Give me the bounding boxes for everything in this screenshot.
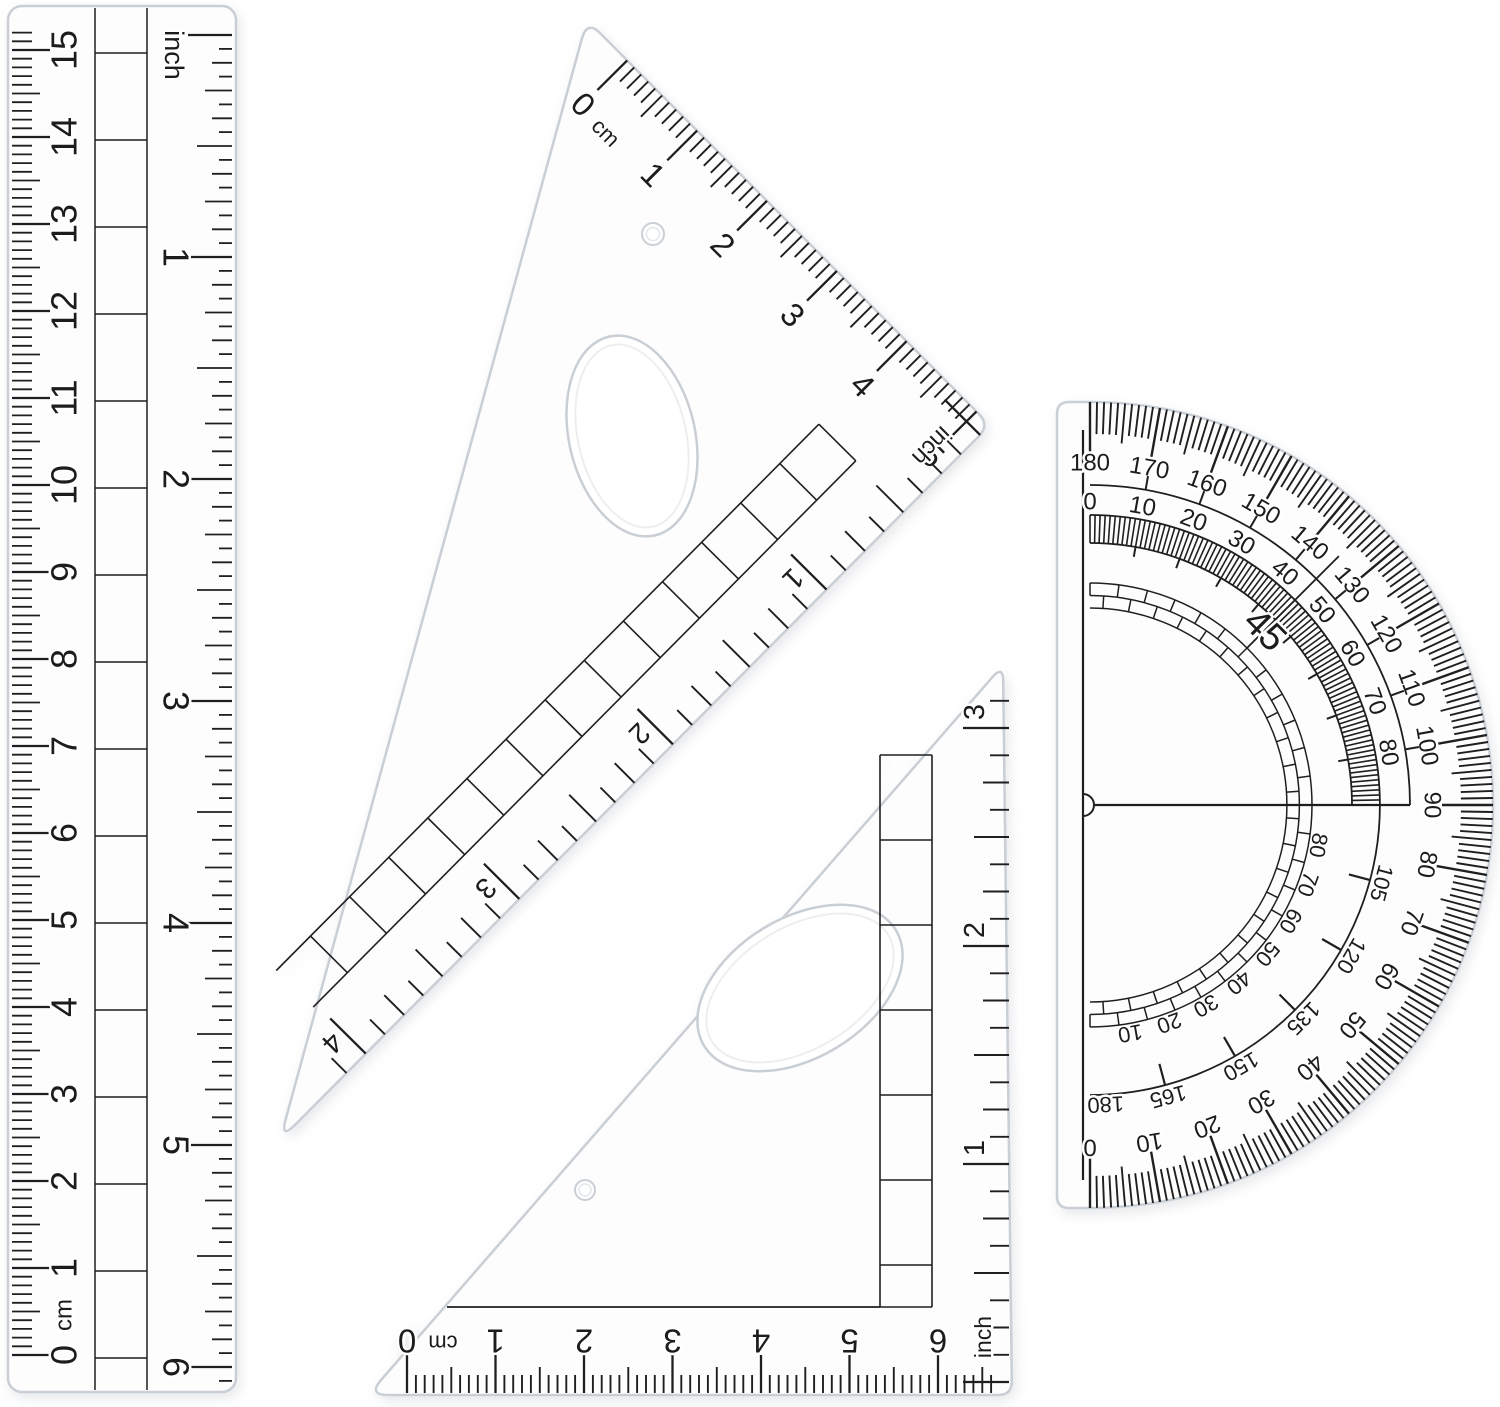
- protractor-outer-degree-tick: [1103, 402, 1104, 434]
- small-set-square-inch-label: 1: [959, 1140, 991, 1156]
- protractor-outer-degree-tick: [1461, 798, 1493, 799]
- ruler-cm-label: 13: [44, 204, 85, 244]
- ruler-inch-label: 6: [156, 1357, 197, 1377]
- ruler-inch-label: 1: [156, 247, 197, 267]
- ruler-inch-label: 4: [156, 913, 197, 933]
- ruler-cm-label: 0: [44, 1345, 85, 1365]
- protractor-hatch-tick: [1099, 515, 1100, 543]
- ruler-cm-label: 7: [44, 736, 85, 756]
- small-set-square-cm-label: 4: [752, 1323, 770, 1360]
- protractor-outer-degree-tick: [1103, 1176, 1104, 1208]
- ruler-inch-label: 5: [156, 1135, 197, 1155]
- ruler-cm-label: 8: [44, 649, 85, 669]
- protractor-outer-degree-tick: [1461, 818, 1493, 819]
- ruler-cm-label: 2: [44, 1171, 85, 1191]
- large-set-square-pin-hole: [642, 223, 664, 245]
- protractor-hatch-tick: [1095, 515, 1096, 543]
- ruler: 0123456789101112131415cm123456inch: [8, 6, 236, 1392]
- ruler-inch-title: inch: [159, 30, 189, 80]
- ruler-cm-label: 6: [44, 823, 85, 843]
- small-set-square-inch-label: 2: [959, 922, 991, 938]
- protractor-outer-degree-tick: [1097, 1176, 1098, 1208]
- ruler-cm-label: 11: [44, 379, 85, 416]
- protractor-hatch-tick: [1352, 795, 1380, 796]
- ruler-inch-label: 2: [156, 469, 197, 489]
- protractor-outer-degree-tick: [1097, 402, 1098, 434]
- protractor-outer-degree-tick: [1461, 791, 1493, 792]
- small-set-square-cm-unit: cm: [428, 1331, 457, 1356]
- protractor-checker-divider: [1103, 1002, 1104, 1015]
- ruler-cm-label: 1: [44, 1258, 85, 1278]
- ruler-cm-label: 10: [44, 465, 85, 505]
- protractor-checker-divider: [1287, 818, 1300, 819]
- small-set-square-inch-label: 3: [959, 704, 991, 720]
- protractor-fifteen-degree-end-label: 180: [1087, 1091, 1125, 1118]
- small-set-square-inch-title: inch: [970, 1316, 996, 1358]
- geometry-set-photo: 0123456789101112131415cm123456inch 12345…: [0, 0, 1500, 1407]
- ruler-cm-label: 3: [44, 1084, 85, 1104]
- protractor-outer-degree-label: 180: [1070, 450, 1110, 477]
- protractor-outer-degree-label: 0: [1083, 1134, 1096, 1161]
- small-set-square-cm-label: 1: [486, 1323, 504, 1360]
- protractor-outer-degree-label: 90: [1419, 792, 1446, 819]
- small-set-square-cm-label: 6: [929, 1323, 947, 1360]
- ruler-inch-label: 3: [156, 691, 197, 711]
- protractor-checker-divider: [1103, 596, 1104, 609]
- small-set-square-cm-label: 2: [575, 1323, 593, 1360]
- small-set-square-cm-label: 5: [840, 1323, 858, 1360]
- small-set-square-cm-zero: 0: [398, 1323, 416, 1360]
- ruler-cm-label: 15: [44, 30, 85, 70]
- protractor-outer-degree-label: 10: [1134, 1126, 1165, 1157]
- ruler-cm-unit-label: cm: [51, 1299, 78, 1331]
- ruler-cm-label: 9: [44, 562, 85, 582]
- small-set-square-pin-hole: [575, 1180, 595, 1200]
- protractor-checker-divider: [1287, 791, 1300, 792]
- ruler-cm-label: 5: [44, 910, 85, 930]
- ruler-cm-label: 4: [44, 997, 85, 1017]
- ruler-cm-label: 12: [44, 291, 85, 331]
- protractor-outer-degree-tick: [1461, 812, 1493, 813]
- protractor: 1801701601501401301201101009080706050403…: [1057, 402, 1493, 1208]
- protractor-outer-degree-label: 80: [1411, 849, 1442, 880]
- photo-stage: 0123456789101112131415cm123456inch 12345…: [0, 0, 1500, 1407]
- protractor-hatch-tick: [1352, 800, 1380, 801]
- protractor-inner-degree-label: 0: [1083, 489, 1096, 516]
- ruler-cm-label: 14: [44, 117, 85, 157]
- small-set-square-cm-label: 3: [663, 1323, 681, 1360]
